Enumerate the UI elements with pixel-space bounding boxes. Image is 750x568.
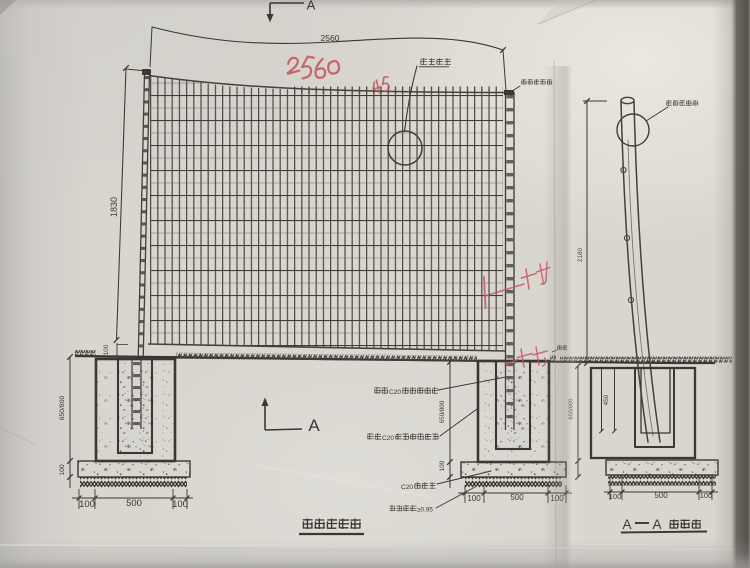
svg-text:≥0.95: ≥0.95 (417, 507, 433, 514)
svg-text:A: A (652, 517, 661, 532)
svg-text:100: 100 (700, 491, 713, 500)
svg-text:100: 100 (467, 494, 481, 503)
svg-text:100: 100 (79, 499, 95, 510)
svg-text:100: 100 (103, 344, 110, 355)
svg-text:C20: C20 (382, 435, 394, 442)
svg-text:100: 100 (439, 460, 446, 471)
svg-text:A: A (622, 517, 631, 532)
svg-text:100: 100 (59, 464, 66, 476)
svg-text:500: 500 (510, 493, 524, 502)
svg-text:500: 500 (126, 498, 142, 509)
svg-text:650/800: 650/800 (59, 396, 66, 421)
svg-text:A: A (307, 0, 316, 13)
svg-text:1830: 1830 (109, 197, 119, 217)
svg-text:C20: C20 (389, 389, 401, 396)
svg-text:C20: C20 (401, 484, 413, 491)
svg-text:650/800: 650/800 (439, 400, 446, 423)
svg-text:2560: 2560 (321, 33, 340, 43)
svg-text:450: 450 (603, 394, 610, 405)
svg-text:500: 500 (654, 491, 668, 500)
svg-text:100: 100 (172, 499, 188, 510)
svg-text:A: A (308, 416, 320, 435)
svg-text:100: 100 (609, 492, 622, 501)
